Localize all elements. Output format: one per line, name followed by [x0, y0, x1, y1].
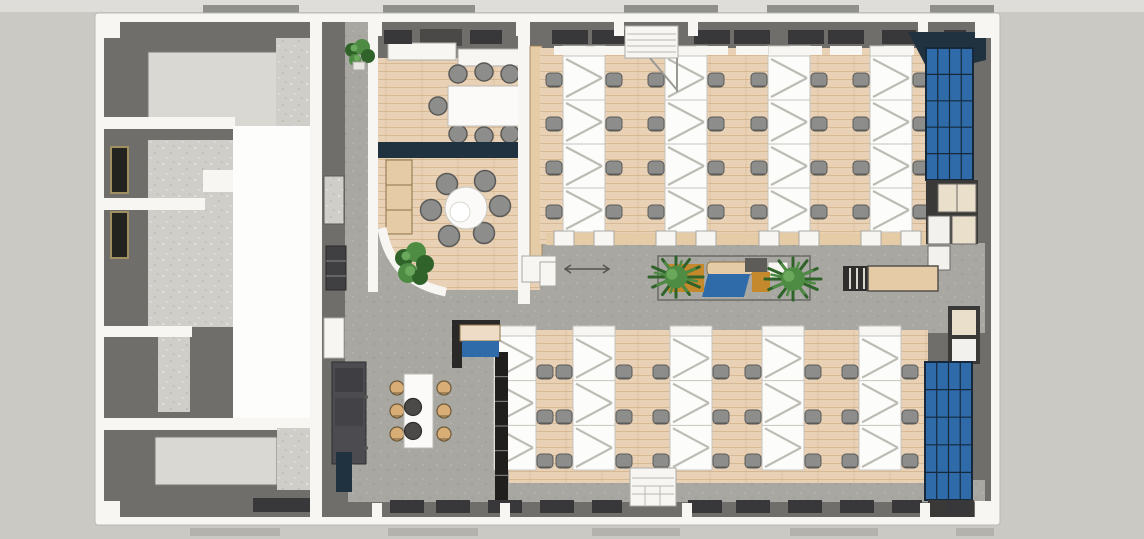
corner-cap: [975, 501, 991, 517]
south-entrance: [630, 468, 676, 506]
navy-panel: [336, 452, 352, 492]
window-pane: [946, 500, 970, 513]
partition-wall: [104, 198, 205, 210]
concrete-floor: [276, 38, 312, 130]
dark-stool: [405, 423, 422, 440]
credenza: [388, 43, 456, 60]
corner-cap: [104, 501, 120, 517]
radiator: [594, 46, 626, 55]
wall-post: [614, 22, 624, 36]
lounge-room: [378, 158, 540, 296]
office-chair: [853, 205, 869, 219]
desk-cap: [670, 326, 712, 336]
meeting-chair: [429, 97, 447, 115]
window-sill: [956, 528, 994, 536]
radiator: [790, 46, 822, 55]
tub-chair: [490, 196, 511, 217]
office-chair: [708, 73, 724, 87]
radiator: [884, 46, 914, 55]
office-chair: [853, 117, 869, 131]
conference-table: [448, 86, 520, 126]
office-chair: [546, 73, 562, 87]
window-pane: [390, 500, 424, 513]
plant-foliage: [361, 49, 375, 63]
office-chair: [842, 454, 858, 468]
radiator: [736, 46, 768, 55]
office-chair: [751, 73, 767, 87]
office-chair: [751, 205, 767, 219]
concrete-floor: [277, 428, 312, 490]
office-chair: [811, 73, 827, 87]
office-chair: [648, 161, 664, 175]
window-pane: [436, 500, 470, 513]
radiator: [696, 46, 728, 55]
office-chair: [648, 117, 664, 131]
office-chair: [653, 454, 669, 468]
booth-top: [460, 325, 500, 341]
white-room: [233, 126, 313, 418]
window-sill: [388, 528, 478, 536]
meeting-chair: [449, 65, 467, 83]
office-chair: [842, 365, 858, 379]
cabinet-block: [554, 231, 574, 246]
window-pane: [788, 500, 822, 513]
corner-cap: [975, 22, 991, 38]
office-chair: [616, 410, 632, 424]
corner-cap: [104, 22, 120, 38]
meeting-chair: [501, 65, 519, 83]
window-pane: [688, 500, 722, 513]
office-chair: [708, 117, 724, 131]
window-pane: [592, 500, 622, 513]
partition-wall: [203, 170, 233, 192]
office-chair: [902, 410, 918, 424]
entrance-steps: [625, 26, 678, 58]
office-chair: [556, 365, 572, 379]
office-chair: [751, 161, 767, 175]
office-chair: [805, 454, 821, 468]
gray-cube-seat: [745, 258, 767, 272]
office-chair: [556, 454, 572, 468]
wall-panel: [324, 318, 344, 358]
meeting-chair: [449, 125, 467, 143]
table-top-detail: [450, 202, 470, 222]
office-chair: [745, 365, 761, 379]
window-pane: [552, 30, 588, 44]
office-chair: [606, 117, 622, 131]
office-chair: [745, 454, 761, 468]
window-pane: [253, 498, 310, 512]
window-pane: [470, 30, 502, 44]
radiator: [554, 46, 586, 55]
tall-cabinet: [326, 246, 346, 290]
wall-post: [500, 503, 510, 517]
office-chair: [708, 161, 724, 175]
spine-cabinets: [324, 176, 346, 358]
meeting-chair: [501, 125, 519, 143]
desk-cap: [573, 326, 615, 336]
plant-pot: [353, 62, 365, 70]
cabinet-block: [901, 231, 921, 246]
window-sill: [790, 528, 878, 536]
counter-panel: [335, 368, 363, 392]
wall-post: [372, 503, 382, 517]
office-chair: [811, 205, 827, 219]
open-office-south: [494, 326, 928, 500]
cabinet-block: [696, 231, 716, 246]
window-sill: [592, 528, 680, 536]
office-chair: [811, 161, 827, 175]
cabinet-block: [759, 231, 779, 246]
office-chair: [902, 454, 918, 468]
window-pane: [952, 339, 976, 361]
dark-stool: [405, 399, 422, 416]
wall-post: [516, 22, 526, 36]
wall-post: [372, 22, 382, 36]
office-chair: [546, 161, 562, 175]
open-office-north: [540, 46, 929, 246]
floor-plan-render: [0, 0, 1144, 539]
floor-dot: [364, 446, 368, 450]
cabinet-block: [594, 231, 614, 246]
room-slab: [155, 437, 277, 485]
office-chair: [805, 410, 821, 424]
office-chair: [537, 365, 553, 379]
window-pane: [828, 30, 864, 44]
office-chair: [751, 117, 767, 131]
cabinet-door: [928, 216, 950, 244]
window-pane: [892, 500, 922, 513]
office-chair: [745, 410, 761, 424]
wall-panel: [324, 176, 344, 224]
wall-post: [920, 503, 930, 517]
tub-chair: [475, 171, 496, 192]
desk-cap: [859, 326, 901, 336]
office-chair: [902, 365, 918, 379]
media-wall: [378, 142, 540, 158]
tub-chair: [439, 226, 460, 247]
wall-end-cap: [540, 262, 556, 286]
office-chair: [713, 410, 729, 424]
meeting-chair: [475, 63, 493, 81]
office-chair: [648, 73, 664, 87]
booth-blue-panel: [462, 341, 499, 357]
office-chair: [713, 365, 729, 379]
wall-post: [682, 503, 692, 517]
office-chair: [842, 410, 858, 424]
cabinet-block: [656, 231, 676, 246]
cabinet-block: [799, 231, 819, 246]
cabinet-door: [952, 216, 976, 244]
spine-wall: [310, 22, 322, 517]
floor-dot: [364, 395, 368, 399]
entrance-steps: [630, 468, 676, 506]
office-chair: [853, 161, 869, 175]
window-pane: [694, 30, 730, 44]
concrete-floor: [148, 140, 233, 327]
radiator: [830, 46, 862, 55]
desk-cap: [762, 326, 804, 336]
window-pane: [788, 30, 824, 44]
office-chair: [537, 410, 553, 424]
bench: [868, 266, 938, 291]
office-chair: [811, 117, 827, 131]
counter-panel: [335, 398, 363, 426]
office-chair: [616, 454, 632, 468]
window-sill: [190, 528, 280, 536]
office-chair: [546, 117, 562, 131]
office-chair: [606, 73, 622, 87]
wall-post: [688, 22, 698, 36]
planter-seat: [752, 272, 770, 292]
blue-mat: [702, 274, 750, 297]
wood-cabinet: [386, 160, 412, 234]
partition-wall: [104, 326, 192, 337]
cabinet-block: [861, 231, 881, 246]
concrete-floor: [158, 337, 190, 412]
window-pane: [384, 30, 412, 44]
office-chair: [616, 365, 632, 379]
window-pane: [540, 500, 574, 513]
office-chair: [606, 205, 622, 219]
office-chair: [606, 161, 622, 175]
window-pane: [734, 30, 770, 44]
office-chair: [853, 73, 869, 87]
window-pane: [952, 310, 976, 335]
office-chair: [713, 454, 729, 468]
office-chair: [546, 205, 562, 219]
window: [111, 147, 128, 193]
office-chair: [805, 365, 821, 379]
partition-wall: [104, 117, 235, 129]
office-chair: [653, 365, 669, 379]
office-chair: [556, 410, 572, 424]
office-chair: [653, 410, 669, 424]
office-chair: [648, 205, 664, 219]
window-pane: [736, 500, 770, 513]
window-pane: [840, 500, 874, 513]
tub-chair: [421, 200, 442, 221]
office-chair: [537, 454, 553, 468]
window: [111, 212, 128, 258]
office-chair: [708, 205, 724, 219]
